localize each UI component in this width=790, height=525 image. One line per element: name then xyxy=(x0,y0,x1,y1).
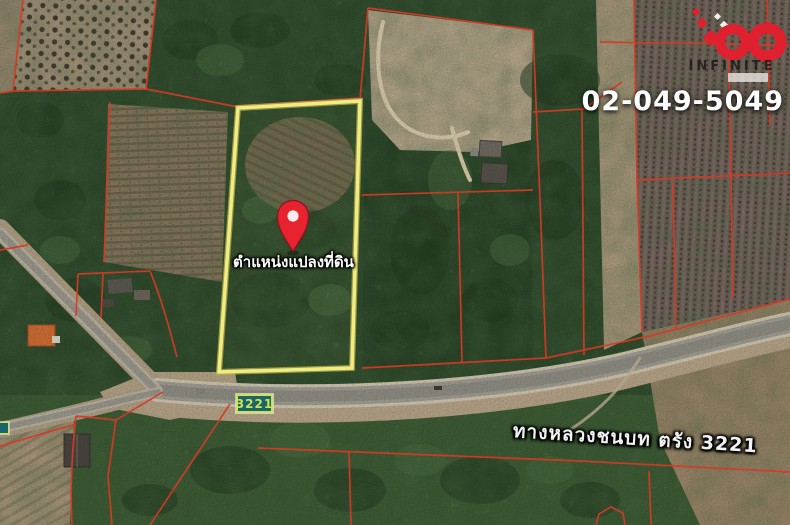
plot-location-label: ตำแหน่งแปลงที่ดิน xyxy=(196,250,391,274)
brand-name: INFINITE xyxy=(676,59,788,74)
land-listing-image: ตำแหน่งแปลงที่ดิน 3221 ทางหลวงชนบท ตรัง … xyxy=(0,0,790,525)
brand-subtext-blur xyxy=(728,73,768,82)
brand-logo: INFINITE xyxy=(676,2,788,90)
contact-phone: 02-049-5049 xyxy=(582,86,785,117)
route-shield-partial xyxy=(0,422,9,434)
route-number: 3221 xyxy=(236,397,273,411)
route-shield: 3221 xyxy=(236,394,273,413)
